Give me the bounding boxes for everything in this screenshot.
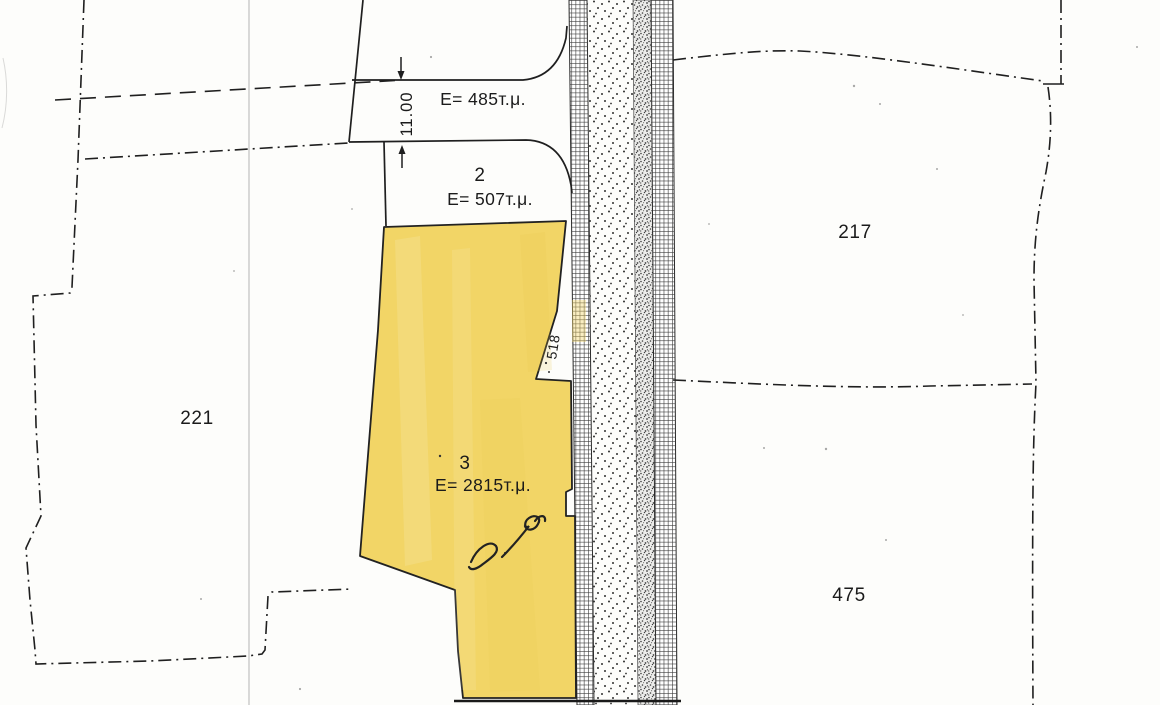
strip-area-label: E= 485т.μ. (440, 89, 526, 109)
parcel3-number-label: 3 (459, 453, 470, 474)
parcel-217-label: 217 (838, 222, 872, 243)
parcel-475-label: 475 (832, 585, 866, 606)
highlighter-bleed (572, 300, 586, 342)
scan-speck (545, 362, 547, 364)
cadastral-map-svg: 11.00 E= 485т.μ. 2 E= 507т.μ. 3 E= 2815т… (0, 0, 1160, 705)
parcel2-number-label: 2 (474, 165, 485, 186)
cadastral-map-scan: 11.00 E= 485т.μ. 2 E= 507т.μ. 3 E= 2815т… (0, 0, 1160, 705)
parcel-221-label: 221 (180, 408, 214, 429)
scan-speck (548, 371, 550, 373)
parcel2-area-label: E= 507т.μ. (447, 189, 533, 209)
parcel3-area-label: E= 2815т.μ. (435, 475, 531, 495)
scan-speck (439, 455, 441, 457)
road-surface-stipple (587, 0, 638, 705)
handwriting-dot (504, 552, 506, 554)
road-corridor (569, 0, 677, 705)
strip-width-dimension-label: 11.00 (398, 91, 416, 136)
